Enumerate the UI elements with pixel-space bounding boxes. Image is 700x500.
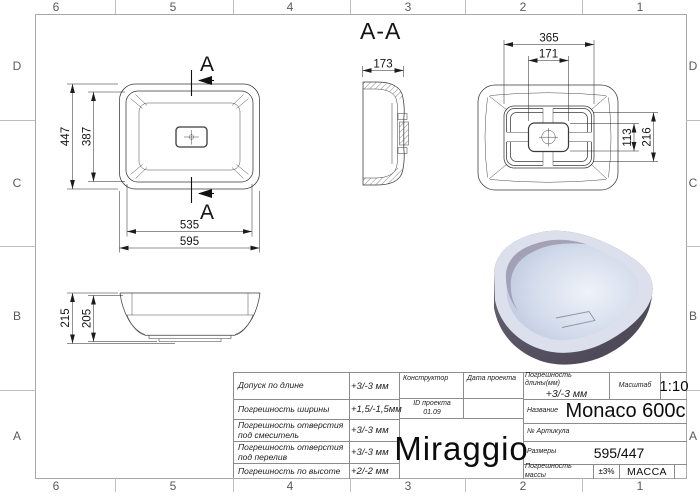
section-marker-label: A [200,201,214,224]
dim-label: 365 [539,33,558,45]
tolerance-label: Погрешность по высоте [234,464,352,479]
dim-label: 205 [82,309,94,328]
scale-value: 1:10 [661,373,687,399]
scale-label: Масштаб [610,373,660,399]
dim-label: 535 [180,220,199,232]
dim-label: 216 [642,127,654,146]
dim-215: 215 [60,293,175,344]
section-marker-bottom: A [192,177,215,224]
dim-label: 215 [60,308,72,327]
drain-center-mark [184,130,199,145]
mass-tolerance-value: ±3% [594,465,619,478]
project-id-label: ID проекта [413,400,451,408]
title-block: Допуск по длине +3/-3 мм Погрешность шир… [233,372,686,478]
mount-bracket [398,114,409,154]
bottom-outer-outline [478,85,618,190]
tolerance-value: +3/-3 мм [351,373,398,399]
top-view: 447 387 535 595 A A [60,53,260,253]
tolerance-label: Допуск по длине [234,373,352,399]
mass-label: МАССА [620,465,674,478]
length-tolerance-cell: Погрешность длины(мм) +3/-3 мм [525,373,608,399]
tolerance-label: Погрешность ширины [234,400,352,419]
product-name-label: Название [527,400,567,422]
bottom-view: 365 171 113 216 [478,33,658,191]
section-marker-label: A [200,53,214,76]
size-label: Размеры [527,442,567,463]
front-view: 215 205 [60,293,260,344]
dim-label: 171 [539,49,558,61]
tolerance-label: Погрешность отверстия под перелив [234,442,352,463]
brand-logo: Miraggio [400,418,523,479]
product-name-value: Monaco 600c [564,400,687,422]
divider [674,464,675,479]
tolerance-value: +2/-2 мм [351,464,398,479]
render-3d [494,231,653,365]
tolerance-value: +3/-3 мм [351,442,398,463]
divider [463,373,464,418]
tolerance-value: +1,5/-1,5мм [351,400,398,419]
dim-205: 205 [82,296,158,342]
project-id-value: 01.09 [423,409,441,417]
dim-535: 535 [127,184,252,237]
dim-label: 387 [82,127,94,146]
technical-drawing-sheet: { "frame": { "columns": ["6", "5", "4", … [0,0,700,500]
section-view-title: A-A [360,18,401,44]
section-hatch-bottom [363,167,403,185]
section-hatch-top [363,82,403,100]
size-value: 595/447 [564,442,674,463]
dim-387: 387 [82,92,126,182]
dim-label: 113 [622,128,634,146]
dim-173: 173 [363,59,404,78]
article-label: № Артикула [527,424,597,440]
tolerance-label: Погрешность отверстия под смеситель [234,420,352,441]
section-view: A-A 173 [360,18,409,185]
project-date-label: Дата проекта [467,373,522,385]
section-marker-top: A [192,53,215,96]
drain-hole-mark [539,128,558,147]
mass-tolerance-label: Погрешность массы [525,465,593,478]
length-tolerance-label: Погрешность длины(мм) [525,372,608,388]
project-id-cell: ID проекта 01.09 [403,399,461,418]
dim-label: 595 [180,236,199,248]
dim-label: 173 [373,59,392,71]
dim-113: 113 [570,124,639,152]
length-tolerance-value: +3/-3 мм [546,388,588,400]
designer-label: Конструктор [403,373,461,385]
tolerance-value: +3/-3 мм [351,420,398,441]
dim-label: 447 [60,127,72,146]
